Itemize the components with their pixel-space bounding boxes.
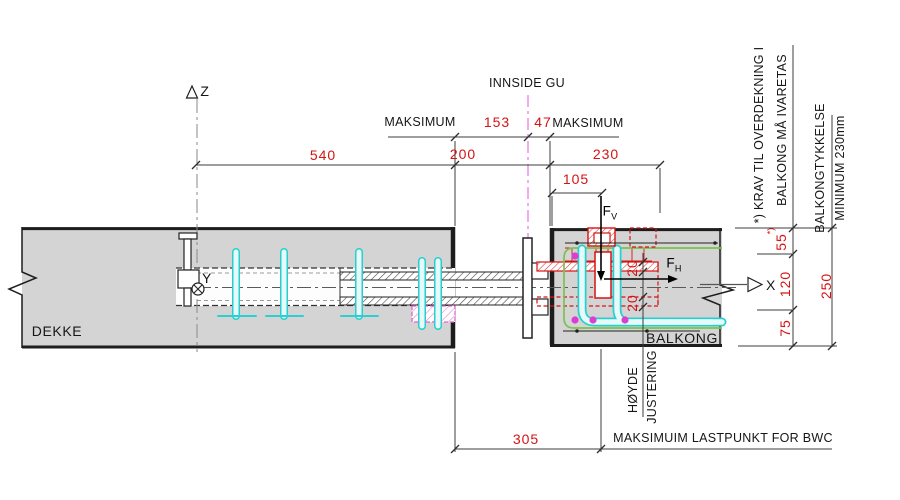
justering-label: JUSTERING	[646, 350, 659, 424]
dim-55-star: *)	[767, 228, 776, 235]
y-axis-label: Y	[202, 271, 212, 285]
thickness-note-line1: BALKONGTYKKELSE	[814, 103, 827, 233]
technical-drawing: INNSIDE GU MAKSIMUM MAKSIMUM 153 47 540 …	[0, 0, 900, 500]
lastpunkt-label: MAKSIMUIM LASTPUNKT FOR BWC	[613, 432, 833, 445]
dim-250: 250	[819, 273, 833, 299]
dekke-label: DEKKE	[32, 324, 82, 338]
hoyde-label: HØYDE	[627, 367, 640, 413]
dim-20-top: 20	[625, 259, 639, 277]
x-axis-label: X	[766, 278, 776, 292]
dim-153: 153	[484, 115, 510, 129]
z-axis-icon	[187, 86, 198, 98]
thickness-note-line2: MINIMUM 230mm	[834, 115, 847, 220]
maksimum-left-label: MAKSIMUM	[384, 116, 455, 129]
maksimum-right-label: MAKSIMUM	[552, 117, 623, 130]
dim-75: 75	[778, 319, 792, 337]
cover-note-line1: *) KRAV TIL OVERDEKNING I	[753, 47, 766, 224]
dim-47: 47	[534, 115, 552, 129]
dim-120: 120	[778, 271, 792, 297]
force-h-label: FH	[666, 257, 681, 274]
dim-540: 540	[310, 148, 336, 162]
dim-230: 230	[593, 147, 619, 161]
dim-55: 55	[774, 233, 788, 251]
dim-105: 105	[563, 172, 589, 186]
dim-200: 200	[450, 147, 476, 161]
cover-note-line2: BALKONG MÅ IVARETAS	[776, 54, 789, 206]
dim-20-bottom: 20	[625, 294, 639, 312]
z-axis-label: Z	[200, 84, 209, 98]
innside-gu-label: INNSIDE GU	[489, 77, 565, 90]
force-v-label: FV	[603, 205, 618, 222]
dim-305: 305	[513, 432, 539, 446]
balkong-label: BALKONG	[646, 331, 718, 345]
